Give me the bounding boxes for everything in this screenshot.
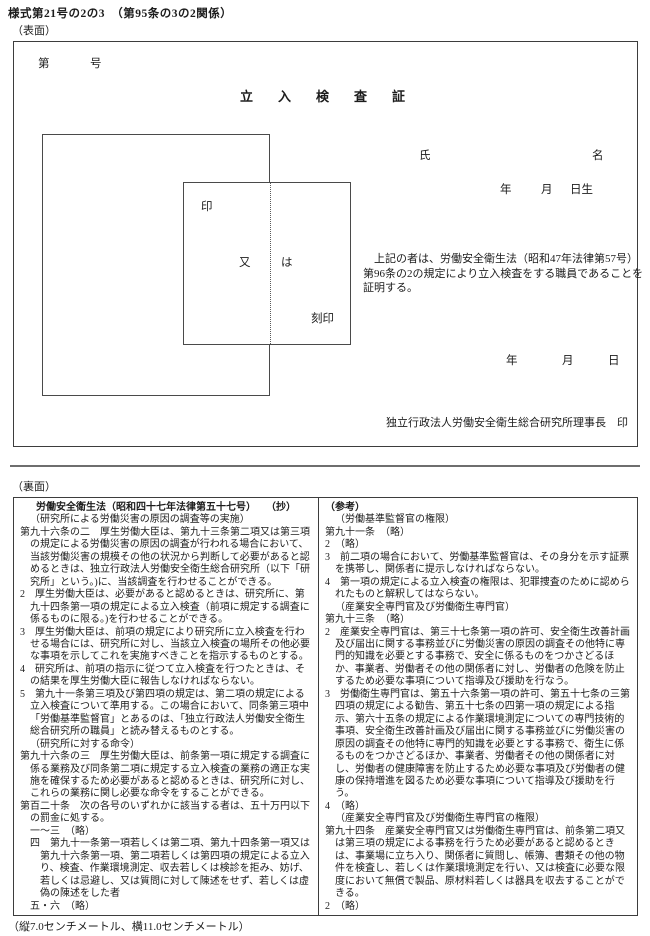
law-text-paragraph: （労働基準監督官の権限） — [325, 514, 632, 526]
law-excerpt-paragraphs: （研究所による労働災害の原因の調査等の実施）第九十六条の二 厚生労働大臣は、第九… — [20, 514, 313, 913]
law-text-paragraph: 3 厚生労働大臣は、前項の規定により研究所に立入検査を行わせる場合には、研究所に… — [20, 627, 313, 664]
reference-title: （参考） — [325, 502, 632, 514]
law-text-paragraph: 2 （略） — [325, 539, 632, 551]
name-label-sei: 氏 — [419, 147, 431, 163]
back-legal-text-box: 労働安全衛生法（昭和四十七年法律第五十七号） （抄） （研究所による労働災害の原… — [13, 497, 638, 916]
reference-paragraphs: （労働基準監督官の権限）第九十一条 （略）2 （略）3 前二項の場合において、労… — [325, 514, 632, 913]
law-text-paragraph: 2 （略） — [325, 901, 632, 913]
law-text-paragraph: （産業安全専門官及び労働衛生専門官） — [325, 602, 632, 614]
reference-column: （参考） （労働基準監督官の権限）第九十一条 （略）2 （略）3 前二項の場合に… — [319, 498, 637, 915]
front-certificate-box: 第 号 立 入 検 査 証 印 又 は 刻印 氏 名 年 月 日生 上記の者は、… — [13, 41, 638, 447]
back-side-label: （裏面） — [12, 478, 56, 494]
law-text-paragraph: （研究所による労働災害の原因の調査等の実施） — [20, 514, 313, 526]
law-text-paragraph: 第九十一条 （略） — [325, 527, 632, 539]
law-text-paragraph: 4 第一項の規定による立入検査の権限は、犯罪捜査のために認められたものと解釈して… — [325, 577, 632, 602]
law-text-paragraph: （研究所に対する命令） — [20, 739, 313, 751]
law-text-paragraph: 第九十六条の三 厚生労働大臣は、前条第一項に規定する調査に係る業務及び同条第二項… — [20, 751, 313, 801]
birthdate-day-label: 日生 — [570, 181, 593, 197]
card-dimensions-note: （縦7.0センチメートル、横11.0センチメートル） — [8, 918, 250, 934]
document-number-prefix: 第 — [38, 55, 50, 71]
issue-date-month-label: 月 — [562, 352, 574, 368]
law-excerpt-column: 労働安全衛生法（昭和四十七年法律第五十七号） （抄） （研究所による労働災害の原… — [14, 498, 319, 915]
law-text-paragraph: 5 第九十一条第三項及び第四項の規定は、第二項の規定による立入検査について準用す… — [20, 689, 313, 739]
law-text-paragraph: 一～三 （略） — [20, 826, 313, 838]
law-text-paragraph: 四 第九十一条第一項若しくは第二項、第九十四条第一項又は第九十六条第一項、第二項… — [20, 838, 313, 900]
law-excerpt-title: 労働安全衛生法（昭和四十七年法律第五十七号） （抄） — [20, 502, 313, 514]
law-text-paragraph: 2 産業安全専門官は、第三十七条第一項の許可、安全衛生改善計画及び届出に関する事… — [325, 627, 632, 689]
law-text-paragraph: 4 研究所は、前項の指示に従つて立入検査を行つたときは、その結果を厚生労働大臣に… — [20, 664, 313, 689]
law-text-paragraph: 第九十四条 産業安全専門官又は労働衛生専門官は、前条第二項又は第三項の規定による… — [325, 826, 632, 901]
law-text-paragraph: 3 前二項の場合において、労働基準監督官は、その身分を示す証票を携帯し、関係者に… — [325, 552, 632, 577]
law-text-paragraph: 3 労働衛生専門官は、第五十六条第一項の許可、第五十七条の三第四項の規定による勧… — [325, 689, 632, 801]
birthdate-month-label: 月 — [541, 181, 553, 197]
birthdate-year-label: 年 — [500, 181, 512, 197]
law-text-paragraph: 4 （略） — [325, 801, 632, 813]
law-text-paragraph: 五・六 （略） — [20, 901, 313, 913]
law-text-paragraph: 第九十三条 （略） — [325, 614, 632, 626]
form-number-heading: 様式第21号の2の3 （第95条の3の2関係） — [8, 5, 232, 21]
issue-date-year-label: 年 — [506, 352, 518, 368]
name-label-mei: 名 — [592, 147, 604, 163]
seal-or-label-part2: は — [281, 254, 293, 270]
law-text-paragraph: 2 厚生労働大臣は、必要があると認めるときは、研究所に、第九十四条第一項の規定に… — [20, 589, 313, 626]
law-text-paragraph: 第百二十条 次の各号のいずれかに該当する者は、五十万円以下の罰金に処する。 — [20, 801, 313, 826]
photo-box-edge-dotted-line — [270, 183, 271, 344]
seal-or-engraving-box: 印 又 は 刻印 — [183, 182, 351, 345]
issuer-signature-line: 独立行政法人労働安全衛生総合研究所理事長 印 — [386, 414, 628, 430]
certificate-title: 立 入 検 査 証 — [14, 86, 637, 105]
seal-label: 印 — [201, 198, 213, 214]
law-text-paragraph: （産業安全専門官及び労働衛生専門官の権限） — [325, 813, 632, 825]
issue-date-day-label: 日 — [608, 352, 620, 368]
document-number-suffix: 号 — [90, 55, 102, 71]
law-text-paragraph: 第九十六条の二 厚生労働大臣は、第九十三条第二項又は第三項の規定による労働災害の… — [20, 527, 313, 589]
front-back-divider — [10, 465, 640, 467]
certification-statement: 上記の者は、労働安全衛生法（昭和47年法律第57号）第96条の2の規定により立入… — [363, 252, 645, 296]
front-side-label: （表面） — [12, 22, 56, 38]
seal-or-label-part1: 又 — [239, 254, 251, 270]
engraving-label: 刻印 — [311, 310, 334, 326]
